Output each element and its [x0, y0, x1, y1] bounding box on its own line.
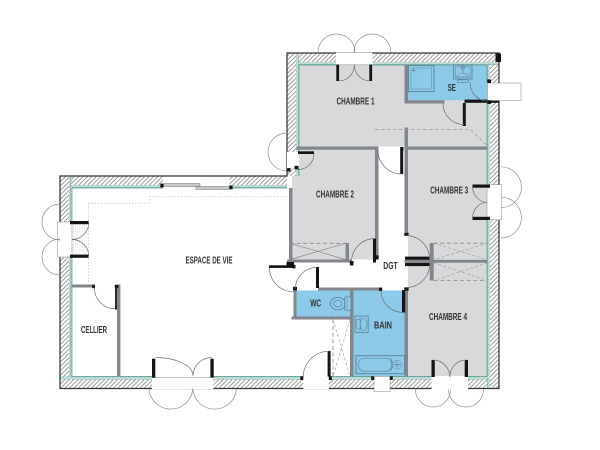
svg-text:BAIN: BAIN	[374, 321, 392, 332]
svg-text:CHAMBRE 1: CHAMBRE 1	[337, 97, 375, 108]
svg-text:CHAMBRE 2: CHAMBRE 2	[316, 190, 354, 201]
svg-text:CELLIER: CELLIER	[81, 325, 107, 336]
svg-text:ESPACE DE VIE: ESPACE DE VIE	[186, 256, 233, 267]
svg-text:SE: SE	[448, 83, 456, 94]
svg-text:CHAMBRE 3: CHAMBRE 3	[430, 185, 468, 196]
svg-text:DGT: DGT	[383, 261, 398, 272]
svg-text:CHAMBRE 4: CHAMBRE 4	[429, 312, 467, 323]
svg-text:WC: WC	[310, 299, 321, 310]
